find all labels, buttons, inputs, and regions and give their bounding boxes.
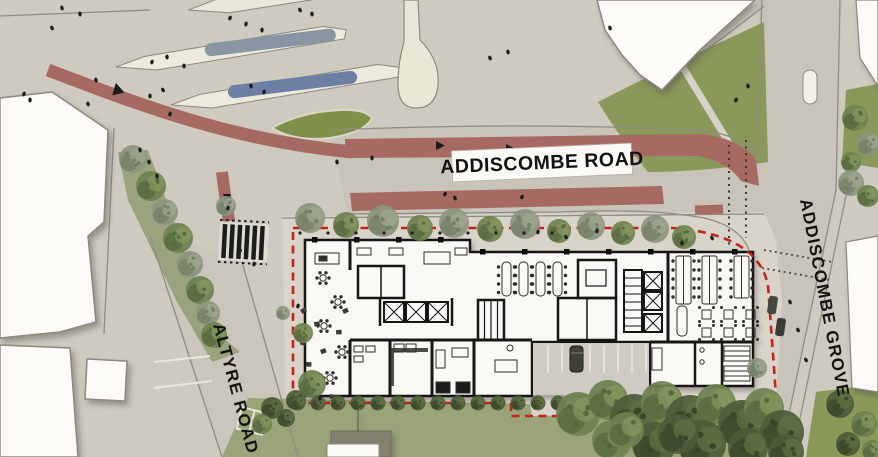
building-floor-plan — [305, 237, 759, 396]
addiscombe-grove-north-surface — [756, 0, 842, 190]
traffic-island-oval — [803, 70, 817, 104]
parking-recess — [533, 343, 649, 395]
building-southwest-annex — [85, 359, 127, 401]
site-plan: ADDISCOMBE ROAD ADDISCOMBE GROVE ALTYRE … — [0, 0, 878, 457]
building-east — [846, 236, 878, 392]
building-west — [0, 92, 108, 338]
site-plan-canvas: ADDISCOMBE ROAD ADDISCOMBE GROVE ALTYRE … — [0, 0, 878, 457]
cycle-lane-corner-strip — [695, 205, 723, 215]
zebra-crossing — [218, 220, 269, 265]
building-southwest — [0, 345, 78, 457]
floor-plate — [305, 240, 753, 396]
parked-car — [570, 346, 583, 372]
